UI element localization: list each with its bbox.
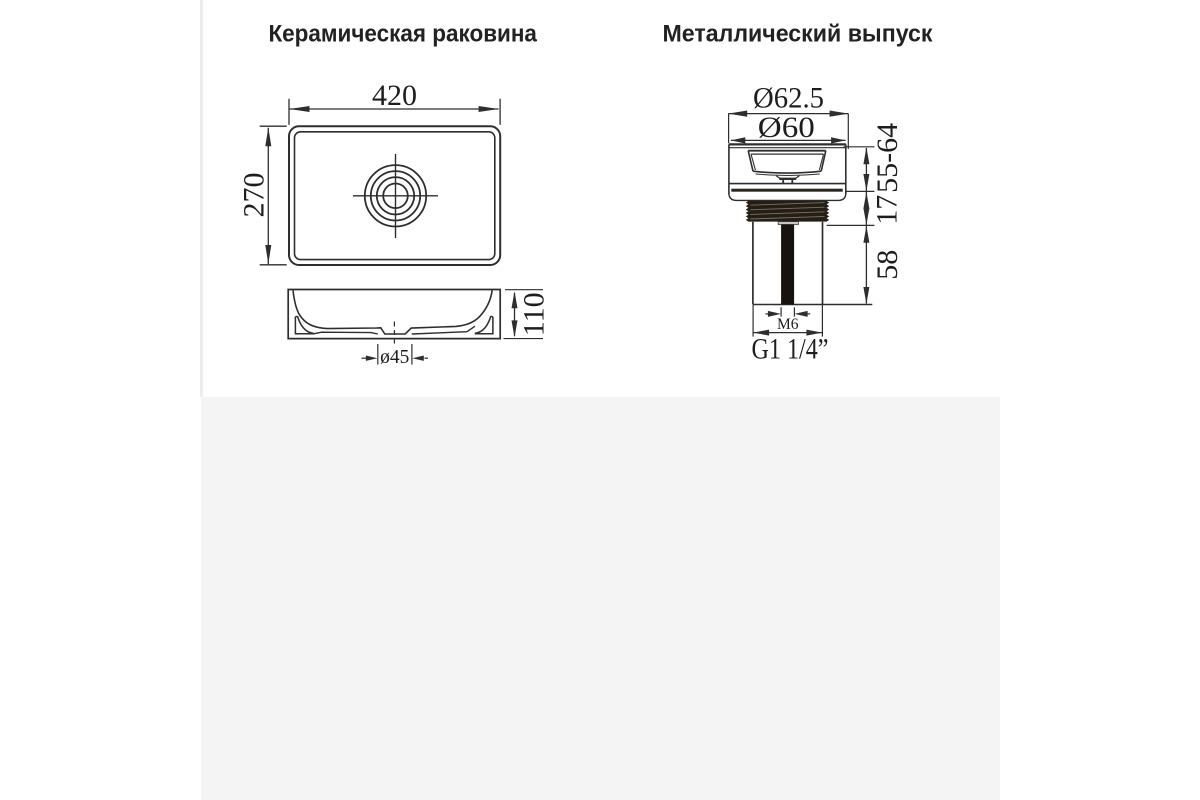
svg-text:17: 17 <box>871 195 904 225</box>
svg-text:G1 1/4”: G1 1/4” <box>752 333 829 366</box>
svg-text:Ø62.5: Ø62.5 <box>753 82 824 115</box>
svg-text:ø45: ø45 <box>380 347 409 368</box>
svg-text:Металлический выпуск: Металлический выпуск <box>663 21 934 48</box>
svg-text:110: 110 <box>517 292 550 336</box>
svg-text:Ø60: Ø60 <box>758 111 815 144</box>
svg-text:Керамическая раковина: Керамическая раковина <box>268 21 537 48</box>
svg-text:55-64: 55-64 <box>871 123 904 193</box>
svg-text:M6: M6 <box>777 316 799 333</box>
svg-text:420: 420 <box>372 79 417 112</box>
svg-text:58: 58 <box>871 250 904 280</box>
svg-text:270: 270 <box>238 173 271 218</box>
